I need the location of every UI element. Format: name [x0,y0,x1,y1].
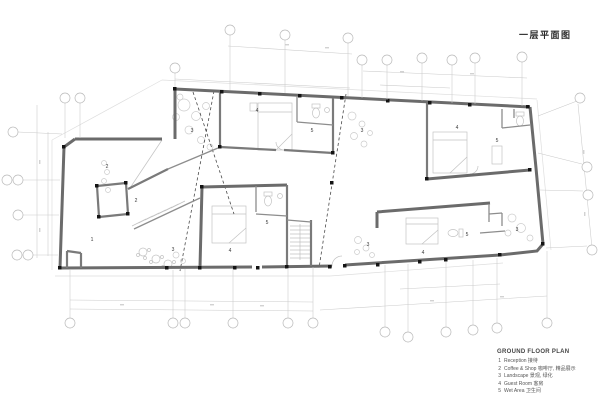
grid-line [546,246,587,248]
dimension-layer [37,44,592,311]
legend-item-number: 3 [497,373,501,381]
stairs [132,201,310,260]
grid-bubble [280,30,290,40]
bed [433,132,467,173]
floor-plan-sheet: 1223333344445555 一层平面图 GROUND FLOOR PLAN… [0,0,600,400]
room-number-label: 3 [516,227,519,233]
grid-bubble [582,162,592,172]
room-number-label: 5 [266,220,269,226]
legend-title: GROUND FLOOR PLAN [497,349,597,355]
grid-bubble [12,250,22,260]
grid-line [540,190,583,191]
room-number-label: 4 [256,108,259,114]
grid-bubble [2,175,12,185]
legend-item: 1Reception 接待 [497,358,597,366]
grid-bubble [23,250,33,260]
grid-bubble [13,210,23,220]
room-number-label: 1 [91,237,94,243]
room-number-label: 3 [367,242,370,248]
room-number-label: 2 [106,164,109,170]
cafe-table [150,255,164,264]
trees-layer [102,94,534,264]
legend-item-label: Coffee & Shop 咖啡厅, 精品展示 [504,366,576,374]
legend-item-label: Landscape 景观, 绿化 [504,373,553,381]
room-number-label: 4 [229,248,232,254]
room-number-label: 5 [311,128,314,134]
grid-bubble [441,327,451,337]
grid-bubble [575,93,585,103]
grid-bubble [583,190,593,200]
room-number-label: 4 [456,125,459,131]
grid-bubble [517,52,527,62]
grid-bubble [357,55,367,65]
legend-item-label: Wet Area 卫生间 [504,388,541,396]
grid-bubble [542,318,552,328]
room-number-label: 5 [496,138,499,144]
grid-line [538,101,577,116]
site-outline-layer [52,80,551,276]
bed [406,218,438,244]
room-number-label: 5 [466,232,469,238]
grid-bubble [283,318,293,328]
sink [325,108,330,113]
grid-bubble [180,318,190,328]
cafe-table [137,248,151,260]
legend: GROUND FLOOR PLAN 1Reception 接待2Coffee &… [497,349,597,396]
grid-bubble [343,33,353,43]
grid-bubble [403,332,413,342]
grid-bubble [587,245,597,255]
grid-line [538,153,582,164]
room-number-label: 2 [135,198,138,204]
room-number-label: 4 [422,250,425,256]
legend-item-label: Guest Room 客房 [504,381,543,389]
room-number-label: 3 [361,128,364,134]
toilet [264,192,272,206]
room-number-label: 3 [191,128,194,134]
sink [278,194,283,199]
legend-item-number: 4 [497,381,501,389]
grid-bubble [447,55,457,65]
legend-item-label: Reception 接待 [504,358,538,366]
grid-line [18,132,62,134]
legend-item-number: 2 [497,366,501,374]
toilet [312,104,320,118]
grid-bubble [308,318,318,328]
toilet [516,112,524,126]
toilet [448,229,463,237]
legend-item-number: 1 [497,358,501,366]
grid-bubble [75,93,85,103]
legend-item: 3Landscape 景观, 绿化 [497,373,597,381]
door-swing [332,256,342,266]
grid-bubble [492,323,502,333]
legend-item: 2Coffee & Shop 咖啡厅, 精品展示 [497,366,597,374]
grid-bubble [60,93,70,103]
legend-item: 4Guest Room 客房 [497,381,597,389]
grid-bubbles-layer [2,25,597,342]
grid-bubble [470,53,480,63]
room-number-label: 3 [172,247,175,253]
desk [492,146,502,164]
legend-items: 1Reception 接待2Coffee & Shop 咖啡厅, 精品展示3La… [497,358,597,396]
dashed-section-lines [180,91,346,271]
door-swing [470,166,478,174]
grid-bubble [8,127,18,137]
plan-canvas: 1223333344445555 [0,0,600,400]
legend-item-number: 5 [497,388,501,396]
legend-item: 5Wet Area 卫生间 [497,388,597,396]
grid-bubble [13,175,23,185]
grid-bubble [228,318,238,328]
walls-layer [60,89,543,268]
grid-bubble [225,25,235,35]
drawing-title: 一层平面图 [519,28,572,41]
grid-bubble [168,318,178,328]
grid-bubble [468,325,478,335]
furniture-layer [130,103,524,269]
bed [212,206,246,243]
grid-bubble [417,53,427,63]
grid-bubble [382,55,392,65]
grid-bubble [65,318,75,328]
grid-bubble [170,63,180,73]
grid-bubble [380,327,390,337]
